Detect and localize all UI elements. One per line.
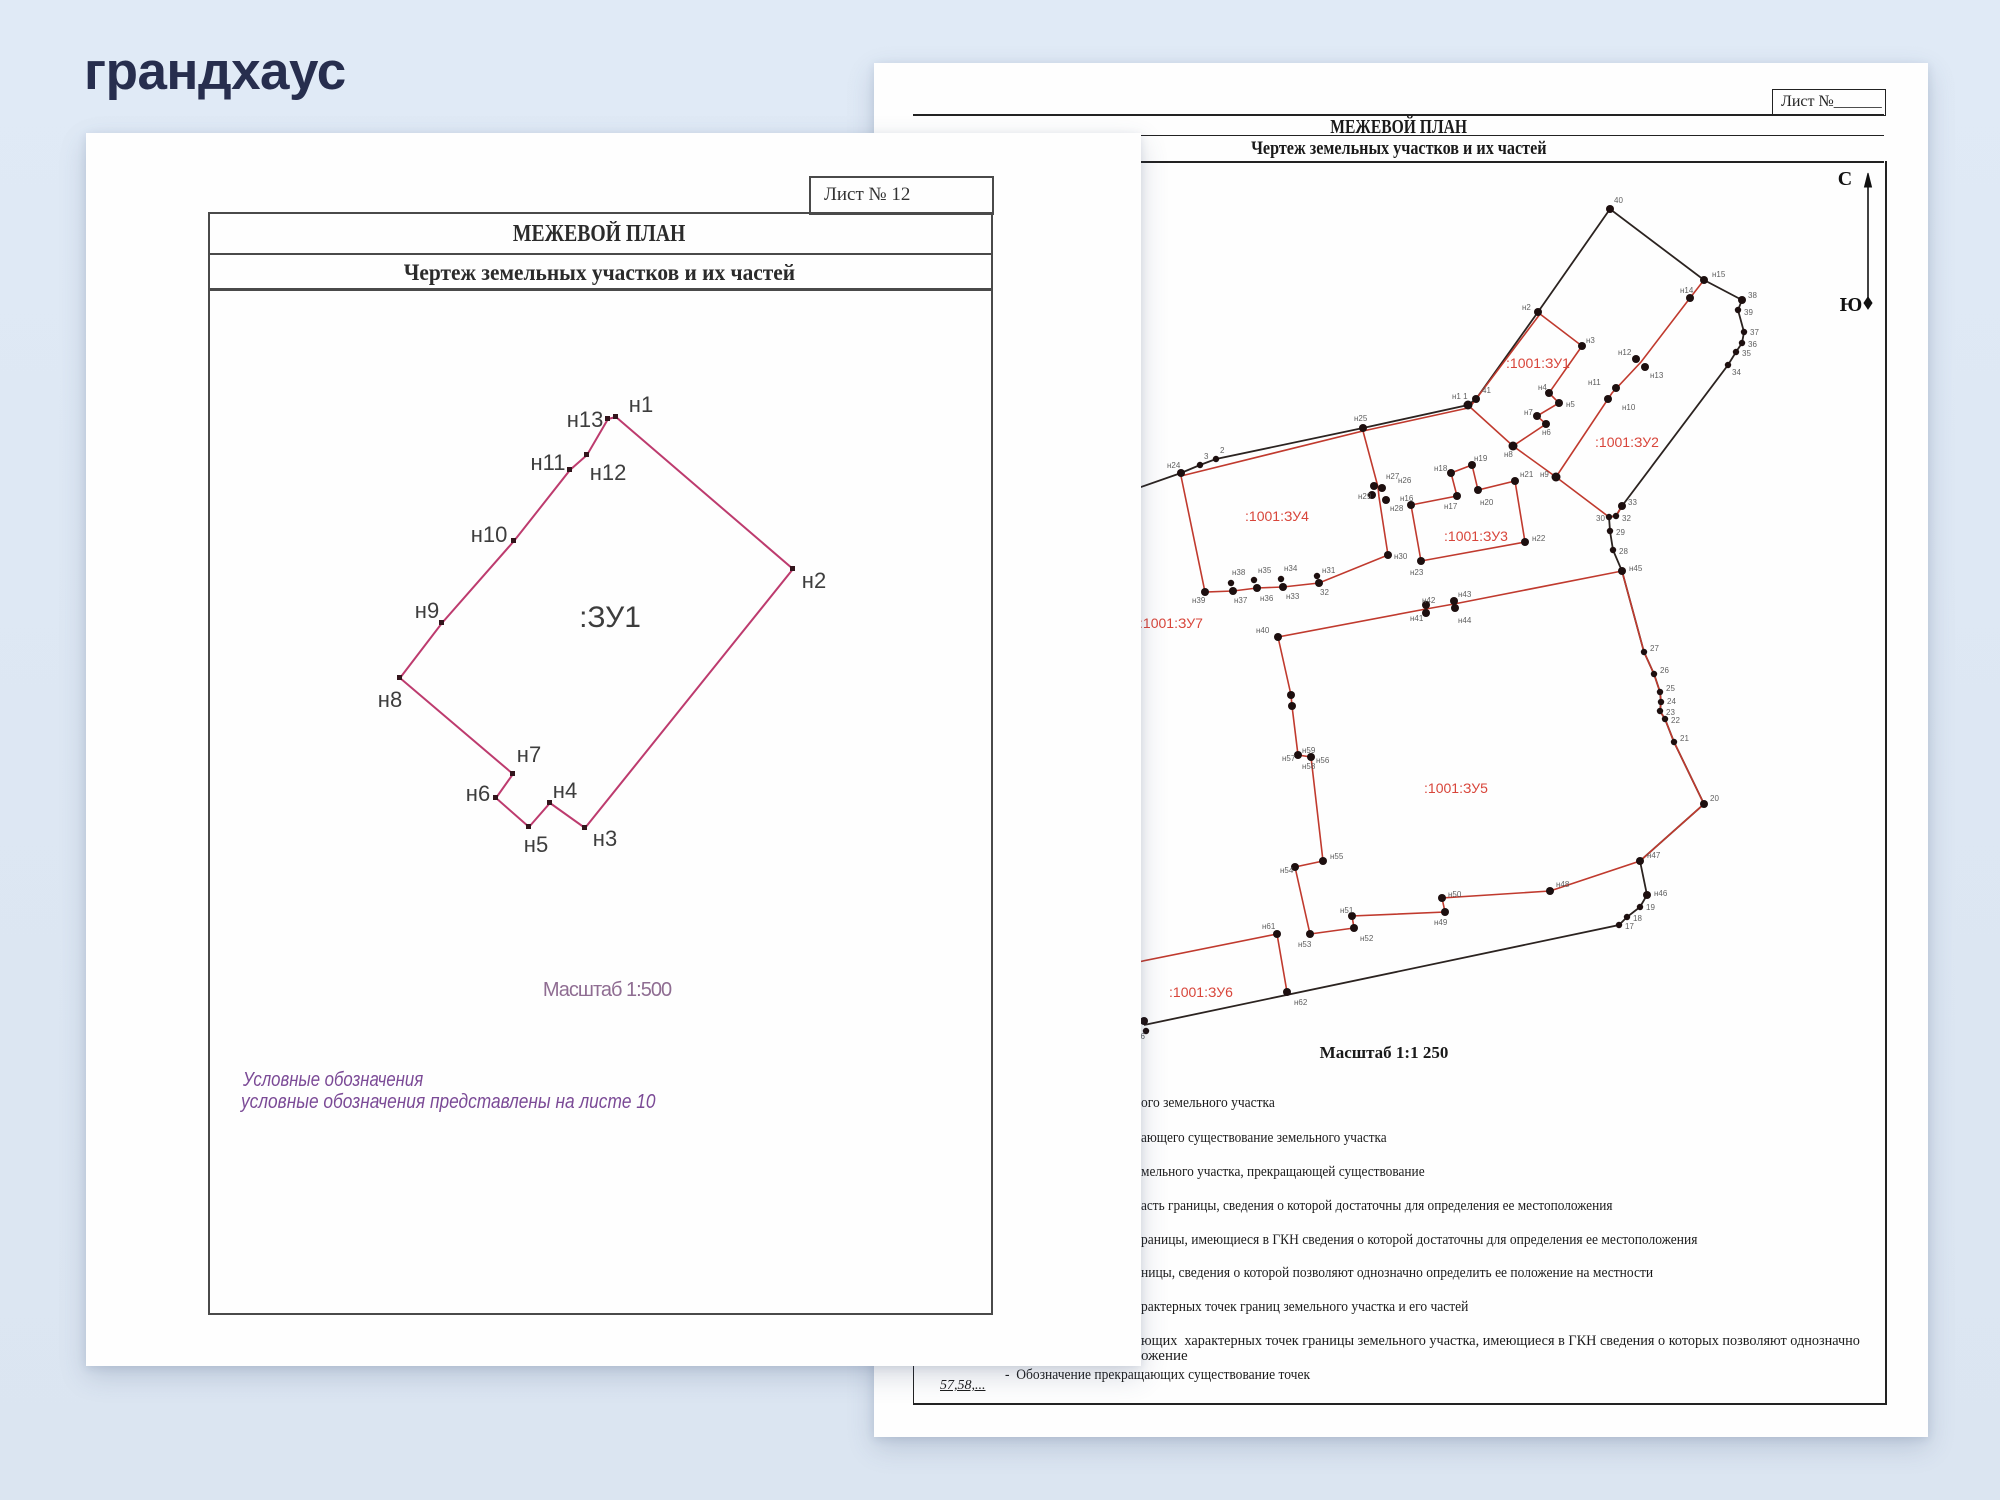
svg-text:н10: н10 (471, 522, 508, 547)
svg-text:н20: н20 (1480, 498, 1494, 507)
svg-text:н24: н24 (1167, 461, 1181, 470)
svg-text:н45: н45 (1629, 564, 1643, 573)
svg-text:28: 28 (1619, 547, 1628, 556)
svg-text:н43: н43 (1458, 590, 1472, 599)
svg-text::1001:ЗУ1: :1001:ЗУ1 (1506, 355, 1570, 371)
svg-text:н54: н54 (1280, 866, 1294, 875)
svg-text:н47: н47 (1647, 851, 1661, 860)
svg-text:17: 17 (1625, 922, 1634, 931)
svg-text:18: 18 (1633, 914, 1642, 923)
svg-text:н4: н4 (553, 778, 577, 803)
svg-text:н2: н2 (1522, 303, 1531, 312)
svg-text:н9: н9 (1540, 470, 1549, 479)
svg-text:н16: н16 (1400, 494, 1414, 503)
svg-text:н11: н11 (531, 450, 566, 475)
svg-text:н52: н52 (1360, 934, 1374, 943)
svg-text:40: 40 (1614, 196, 1623, 205)
svg-text:н23: н23 (1410, 568, 1424, 577)
svg-text::1001:ЗУ2: :1001:ЗУ2 (1595, 434, 1659, 450)
svg-text:С: С (1838, 168, 1852, 190)
svg-text:н1: н1 (629, 392, 653, 417)
svg-text:20: 20 (1710, 794, 1719, 803)
svg-text:н13: н13 (567, 407, 604, 432)
svg-text:н9: н9 (415, 598, 439, 623)
svg-text:н3: н3 (593, 826, 617, 851)
svg-text:н59: н59 (1302, 746, 1316, 755)
svg-text:н56: н56 (1316, 756, 1330, 765)
svg-text:34: 34 (1732, 368, 1741, 377)
svg-text:39: 39 (1744, 308, 1753, 317)
svg-text::1001:ЗУ4: :1001:ЗУ4 (1245, 508, 1309, 524)
svg-text:н7: н7 (1524, 408, 1533, 417)
svg-text:н37: н37 (1234, 596, 1248, 605)
svg-text:н40: н40 (1256, 626, 1270, 635)
svg-text:н34: н34 (1284, 564, 1298, 573)
svg-text:н51: н51 (1340, 906, 1354, 915)
svg-text:41: 41 (1482, 386, 1491, 395)
svg-text:н17: н17 (1444, 502, 1458, 511)
svg-text:н12: н12 (1618, 348, 1632, 357)
svg-text:29: 29 (1616, 528, 1625, 537)
svg-text:н35: н35 (1258, 566, 1272, 575)
svg-text:н42: н42 (1422, 596, 1436, 605)
svg-text:н2: н2 (802, 568, 826, 593)
svg-text:27: 27 (1650, 644, 1659, 653)
svg-text:н8: н8 (378, 687, 402, 712)
svg-text::1001:ЗУ7: :1001:ЗУ7 (1139, 615, 1203, 631)
svg-text:32: 32 (1622, 514, 1631, 523)
svg-text:н4: н4 (1538, 383, 1547, 392)
svg-text:н12: н12 (590, 460, 627, 485)
svg-text:36: 36 (1748, 340, 1757, 349)
svg-text:н13: н13 (1650, 371, 1664, 380)
svg-text:3: 3 (1204, 452, 1209, 461)
svg-text:н19: н19 (1474, 454, 1488, 463)
svg-text:25: 25 (1666, 684, 1675, 693)
svg-text:22: 22 (1671, 716, 1680, 725)
svg-text:37: 37 (1750, 328, 1759, 337)
svg-text:н18: н18 (1434, 464, 1448, 473)
svg-text:н46: н46 (1654, 889, 1668, 898)
svg-text:33: 33 (1628, 498, 1637, 507)
svg-text:24: 24 (1667, 697, 1676, 706)
svg-text:35: 35 (1742, 349, 1751, 358)
svg-text:н55: н55 (1330, 852, 1344, 861)
svg-text:32: 32 (1320, 588, 1329, 597)
svg-text:н53: н53 (1298, 940, 1312, 949)
svg-text:н21: н21 (1520, 470, 1534, 479)
svg-text:26: 26 (1660, 666, 1669, 675)
svg-text::ЗУ1: :ЗУ1 (579, 601, 641, 634)
svg-text:н15: н15 (1712, 270, 1726, 279)
svg-text:н6: н6 (466, 781, 490, 806)
svg-text:н61: н61 (1262, 922, 1276, 931)
svg-text:н44: н44 (1458, 616, 1472, 625)
svg-text:н8: н8 (1504, 450, 1513, 459)
svg-text:н36: н36 (1260, 594, 1274, 603)
svg-text:н7: н7 (517, 742, 541, 767)
svg-text:н30: н30 (1394, 552, 1408, 561)
svg-text:н33: н33 (1286, 592, 1300, 601)
svg-text:38: 38 (1748, 291, 1757, 300)
svg-text:н48: н48 (1556, 880, 1570, 889)
svg-text:н22: н22 (1532, 534, 1546, 543)
svg-text:21: 21 (1680, 734, 1689, 743)
svg-text:н58: н58 (1302, 762, 1316, 771)
svg-text:30: 30 (1596, 514, 1605, 523)
svg-text:н29: н29 (1358, 492, 1372, 501)
svg-text:н50: н50 (1448, 890, 1462, 899)
svg-text:н39: н39 (1192, 596, 1206, 605)
svg-text:н49: н49 (1434, 918, 1448, 927)
svg-text:н3: н3 (1586, 336, 1595, 345)
svg-text:2: 2 (1220, 446, 1225, 455)
svg-text:н10: н10 (1622, 403, 1636, 412)
svg-text:н5: н5 (1566, 400, 1575, 409)
svg-text:н57: н57 (1282, 754, 1296, 763)
svg-text:н14: н14 (1680, 286, 1694, 295)
svg-text::1001:ЗУ6: :1001:ЗУ6 (1169, 984, 1233, 1000)
svg-text::1001:ЗУ5: :1001:ЗУ5 (1424, 780, 1488, 796)
svg-text:н11: н11 (1588, 378, 1601, 387)
svg-text:н28: н28 (1390, 504, 1404, 513)
svg-text::1001:ЗУ3: :1001:ЗУ3 (1444, 528, 1508, 544)
svg-text:н5: н5 (524, 832, 548, 857)
svg-text:н27: н27 (1386, 472, 1400, 481)
svg-text:Ю: Ю (1840, 294, 1863, 316)
svg-text:н31: н31 (1322, 566, 1336, 575)
svg-text:н38: н38 (1232, 568, 1246, 577)
svg-text:н1 1: н1 1 (1452, 392, 1468, 401)
svg-text:н6: н6 (1542, 428, 1551, 437)
svg-text:19: 19 (1646, 903, 1655, 912)
svg-text:н25: н25 (1354, 414, 1368, 423)
svg-text:н41: н41 (1410, 614, 1424, 623)
svg-text:н26: н26 (1398, 476, 1412, 485)
svg-text:н62: н62 (1294, 998, 1308, 1007)
